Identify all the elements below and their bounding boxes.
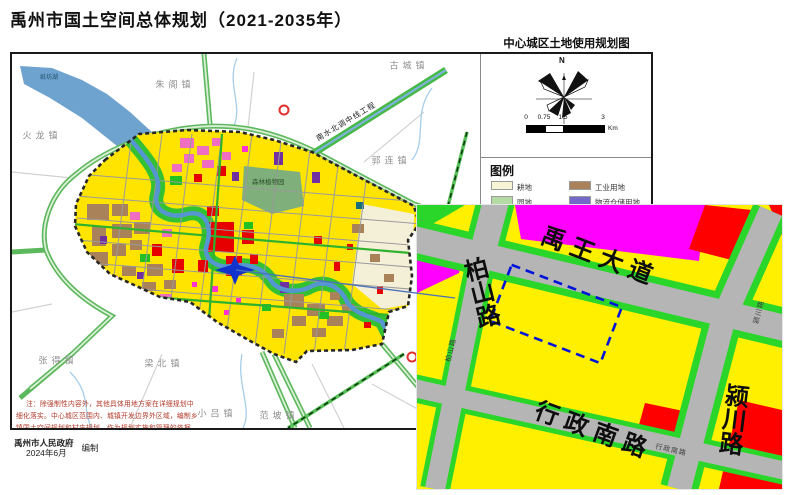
- legend-label-industrial: 工业用地: [595, 182, 625, 193]
- credit-date: 2024年6月: [14, 448, 74, 458]
- scale-bar: [526, 125, 605, 133]
- main-map: 朱阁镇 古城镇 火龙镇 郭连镇 张得镇 梁北镇 小吕镇 范坡镇 纸坊湖 南水北调…: [12, 54, 481, 428]
- scale-tick-3: 3: [601, 114, 605, 121]
- town-label-fanpo: 范坡镇: [259, 409, 298, 422]
- town-label-guolian: 郭连镇: [371, 154, 410, 167]
- park-label: 森林植物园: [252, 176, 285, 186]
- map-note-line1: 注：除强制性内容外，其他具体用地方案在详细规划中: [26, 398, 194, 408]
- town-label-huolong: 火龙镇: [22, 129, 61, 142]
- legend-swatch-logistics: [569, 196, 591, 205]
- map-note-line3: 镇国土空间规划和村庄规划，作为规划实施和管理的依据。: [16, 422, 198, 428]
- scale-tick-0: 0: [524, 114, 528, 121]
- main-map-graphic: [12, 54, 480, 428]
- north-label: N: [559, 56, 565, 65]
- credit-role: 编制: [82, 442, 99, 454]
- town-label-xiaolv: 小吕镇: [197, 407, 236, 420]
- map-note-line2: 细化落实。中心城区范围内、城镇开发边界外区域，编制乡: [16, 410, 198, 420]
- legend-swatch-garden: [491, 196, 513, 205]
- legend-label-cropland: 耕地: [517, 182, 532, 193]
- town-label-gucheng: 古城镇: [389, 59, 428, 72]
- scale-unit: Km: [608, 125, 618, 132]
- detail-inset-map: 禹王大道 柏山路 行政南路 颍川路 柏山路 行政南路 颍川路: [417, 205, 782, 489]
- panel-divider: [481, 157, 651, 158]
- credit-org: 禹州市人民政府: [14, 438, 74, 448]
- lake-label: 纸坊湖: [40, 72, 58, 81]
- credits: 禹州市人民政府 2024年6月 编制: [14, 438, 99, 458]
- legend-swatch-industrial: [569, 181, 591, 190]
- town-label-liangbei: 梁北镇: [144, 357, 183, 370]
- town-label-zhuge: 朱阁镇: [155, 78, 194, 91]
- planning-map-screenshot: 禹州市国土空间总体规划（2021-2035年） 中心城区土地使用规划图: [0, 0, 792, 495]
- scale-tick-15: 1.5: [558, 114, 567, 121]
- town-label-zhangde: 张得镇: [38, 354, 77, 367]
- inset-panel-title: 中心城区土地使用规划图: [480, 35, 653, 51]
- legend-swatch-cropland: [491, 181, 513, 190]
- scale-tick-075: 0.75: [538, 114, 551, 121]
- page-title: 禹州市国土空间总体规划（2021-2035年）: [10, 6, 352, 31]
- legend-title: 图例: [490, 162, 514, 179]
